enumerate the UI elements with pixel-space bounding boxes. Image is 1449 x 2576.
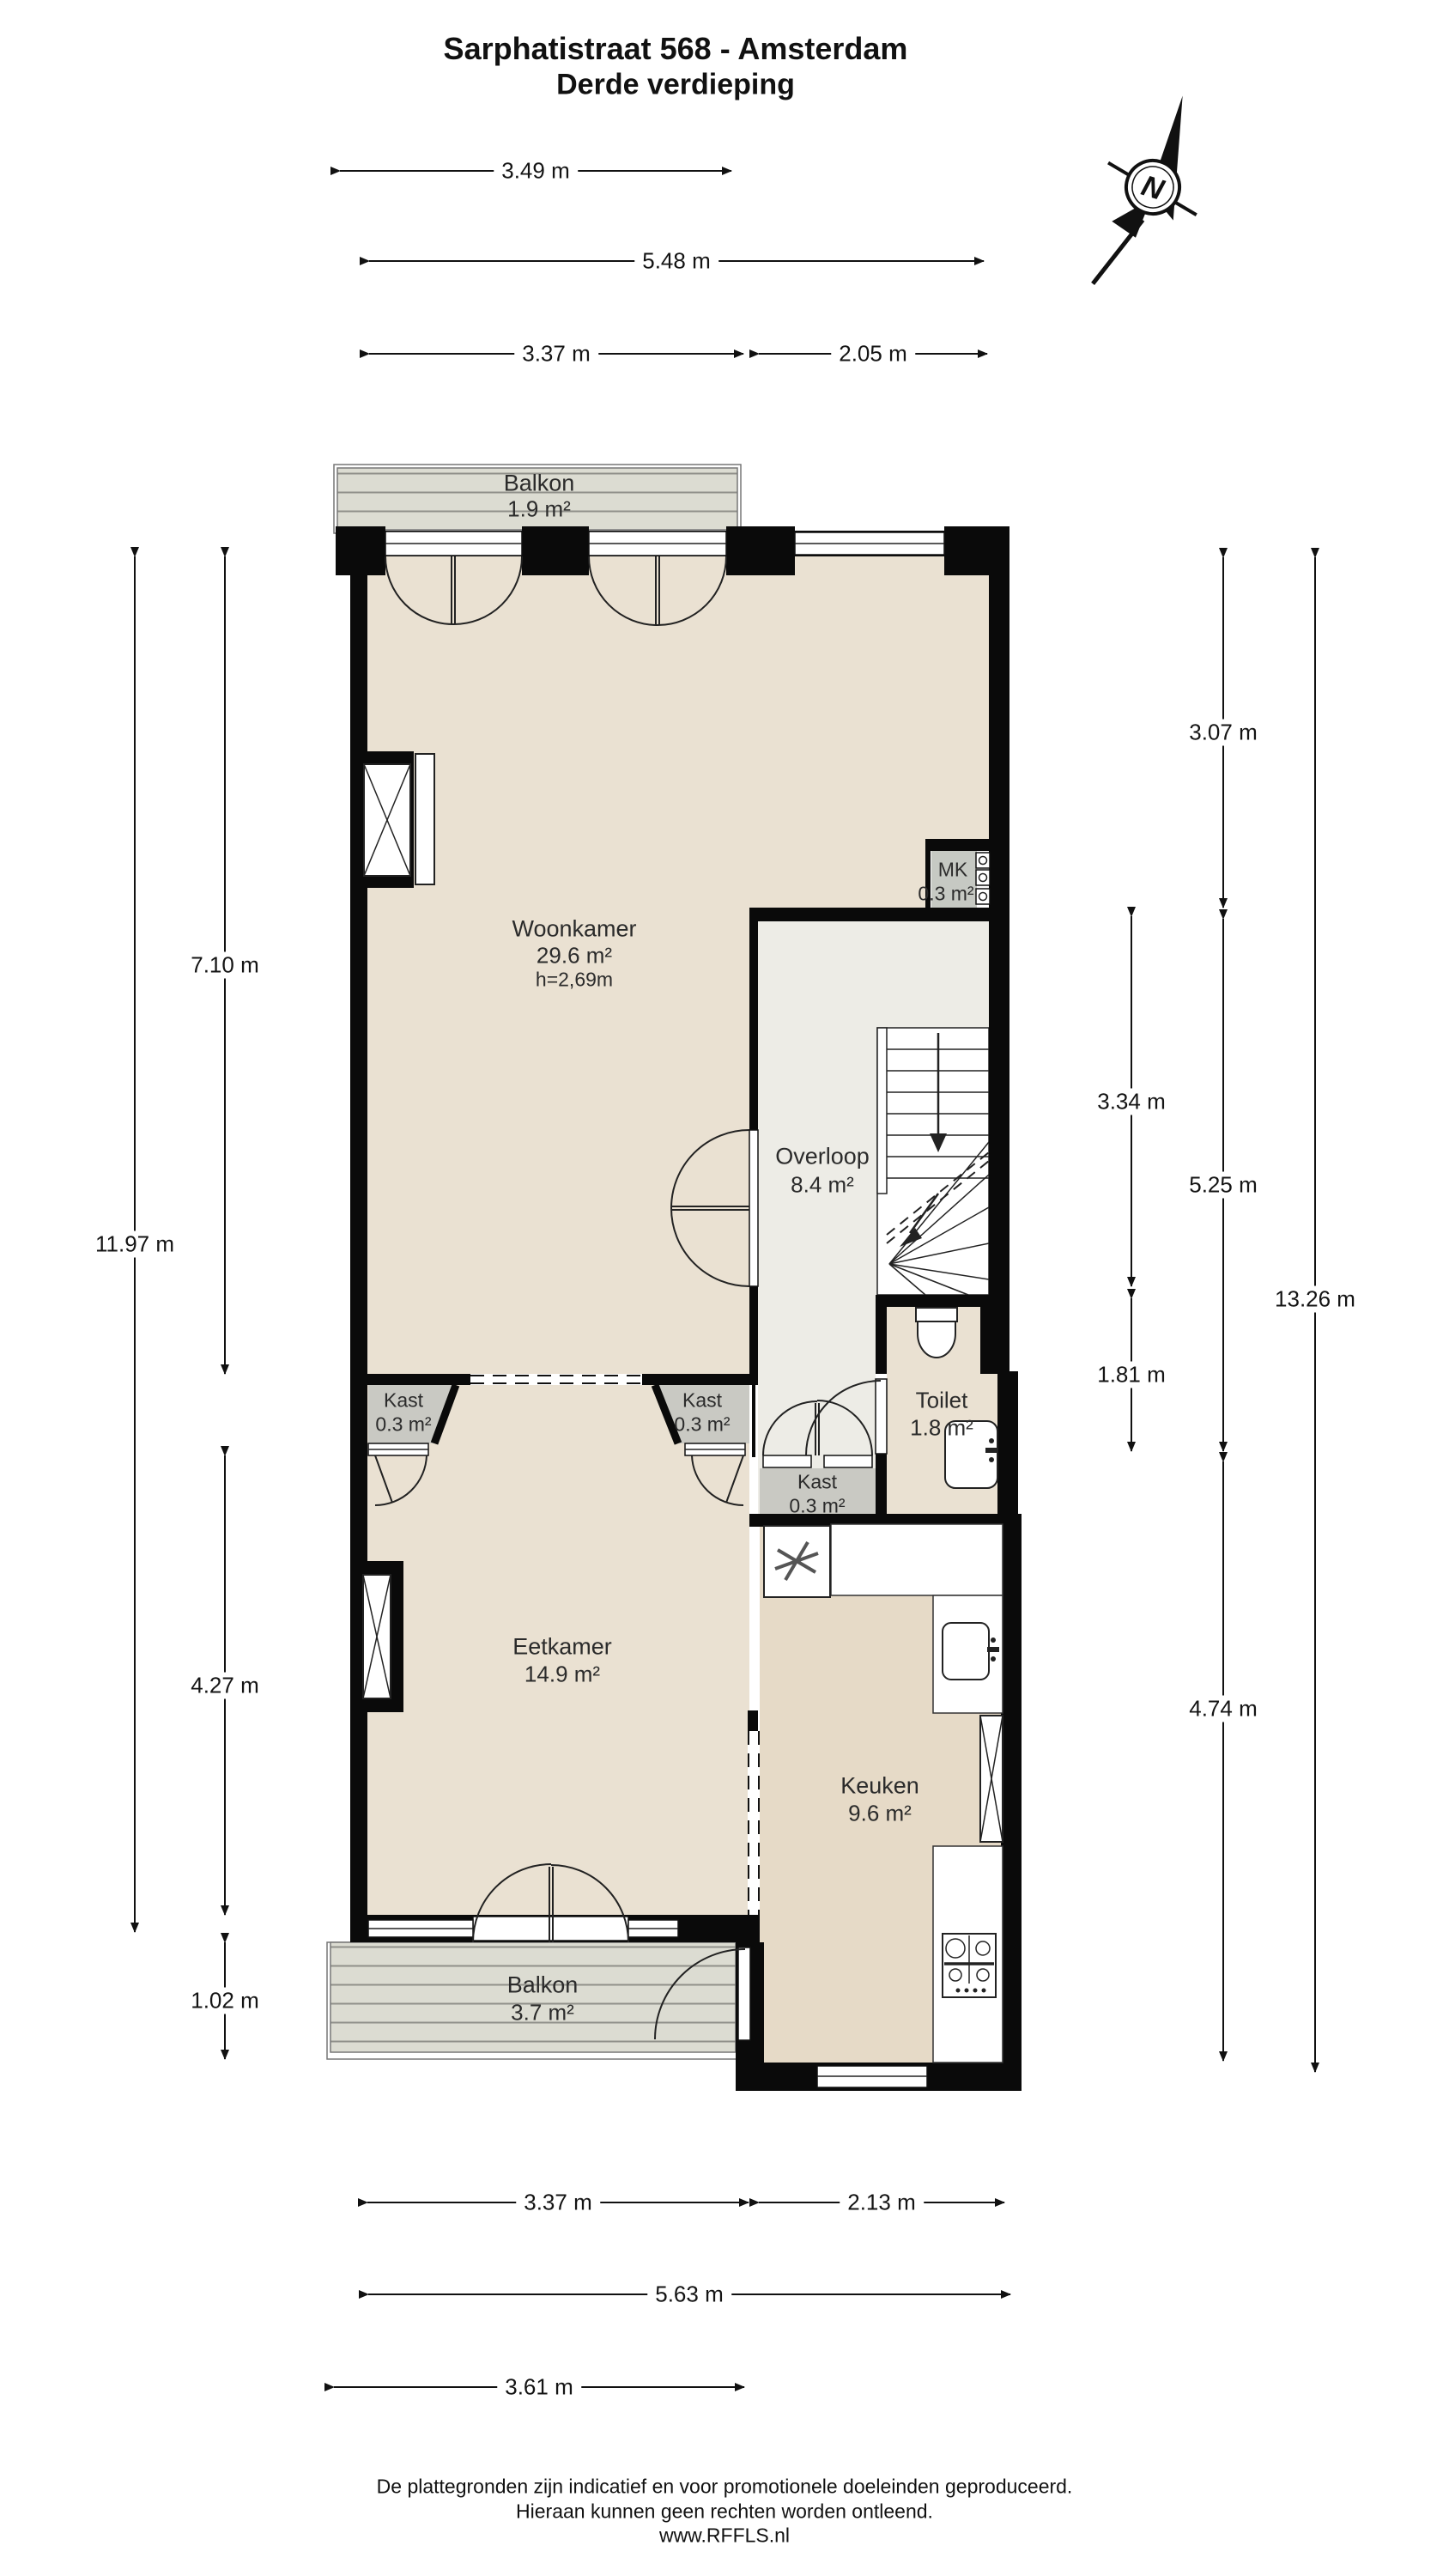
dim-label-top-337: 3.37 m: [514, 341, 598, 368]
dim-label-bottom-213: 2.13 m: [840, 2190, 924, 2216]
room-area-kast-hal: 0.3 m²: [789, 1495, 845, 1518]
eetkamer-balcony-door-opening: [473, 1917, 628, 1941]
toilet-fixture: [916, 1308, 957, 1358]
page-subtitle: Derde verdieping: [556, 69, 795, 102]
chimney-eetkamer: [350, 1561, 403, 1712]
dim-label-top-548: 5.48 m: [634, 248, 718, 275]
floorplan-page: N Sarphatistraat 568 - Amsterdam Derde v…: [0, 0, 1449, 2576]
dim-label-left-427: 4.27 m: [183, 1673, 267, 1699]
room-label-balkon-bottom: Balkon: [507, 1972, 579, 1999]
room-area-toilet: 1.8 m²: [910, 1415, 973, 1442]
dim-label-right-334: 3.34 m: [1089, 1089, 1173, 1115]
kast-hal-door-left: [763, 1455, 811, 1467]
dim-label-right-474: 4.74 m: [1181, 1696, 1265, 1722]
chimney-woonkamer: [350, 751, 434, 888]
dim-label-bottom-361: 3.61 m: [497, 2374, 581, 2401]
north-compass-icon: N: [1073, 81, 1228, 307]
ventilation-fan: [764, 1526, 830, 1597]
room-area-balkon-bottom: 3.7 m²: [511, 2000, 574, 2026]
dim-label-right-181: 1.81 m: [1089, 1362, 1173, 1388]
room-area-keuken: 9.6 m²: [848, 1801, 912, 1827]
floor-fills: [367, 556, 1003, 2064]
kast-hal-door-right: [824, 1455, 872, 1467]
footer-disclaimer-line2: Hieraan kunnen geen rechten worden ontle…: [516, 2500, 933, 2524]
dim-label-right-307: 3.07 m: [1181, 720, 1265, 746]
room-label-kast-left: Kast: [384, 1389, 423, 1413]
page-title: Sarphatistraat 568 - Amsterdam: [444, 31, 908, 67]
floor-plan-drawing: N: [0, 0, 1449, 2576]
dim-label-top-205: 2.05 m: [831, 341, 915, 368]
room-area-kast-right: 0.3 m²: [674, 1413, 730, 1437]
room-label-eetkamer: Eetkamer: [512, 1634, 612, 1661]
dim-label-right-1326: 13.26 m: [1267, 1286, 1363, 1313]
room-label-kast-right: Kast: [682, 1389, 722, 1413]
dim-label-left-710: 7.10 m: [183, 952, 267, 979]
room-area-woonkamer: 29.6 m²: [537, 943, 612, 969]
dim-label-right-525: 5.25 m: [1181, 1172, 1265, 1199]
room-area-eetkamer: 14.9 m²: [524, 1662, 600, 1688]
room-area-overloop: 8.4 m²: [791, 1172, 854, 1199]
footer-disclaimer-line1: De plattegronden zijn indicatief en voor…: [377, 2476, 1073, 2499]
room-area-kast-left: 0.3 m²: [375, 1413, 431, 1437]
room-label-balkon-top: Balkon: [504, 471, 575, 497]
room-label-mk: MK: [938, 859, 968, 882]
footer-website: www.RFFLS.nl: [659, 2524, 790, 2548]
keuken-balcony-door-leaf: [738, 1947, 750, 2040]
kitchen-sink: [933, 1595, 1003, 1713]
room-label-woonkamer: Woonkamer: [512, 916, 636, 943]
stove: [933, 1846, 1003, 2063]
room-label-toilet: Toilet: [916, 1388, 968, 1414]
dim-label-bottom-337: 3.37 m: [516, 2190, 600, 2216]
room-label-overloop: Overloop: [775, 1144, 870, 1170]
room-label-keuken: Keuken: [840, 1773, 919, 1800]
woonkamer-door-opening: [749, 1130, 758, 1286]
toilet-door-leaf: [876, 1379, 887, 1454]
room-label-kast-hal: Kast: [797, 1471, 837, 1494]
room-area-balkon-top: 1.9 m²: [507, 496, 571, 523]
room-height-woonkamer: h=2,69m: [536, 969, 613, 992]
dim-label-left-1197: 11.97 m: [88, 1231, 182, 1258]
room-area-mk: 0.3 m²: [918, 883, 973, 906]
dim-label-left-102: 1.02 m: [183, 1988, 267, 2014]
tall-appliance: [980, 1716, 1003, 1842]
dim-label-top-349: 3.49 m: [494, 158, 578, 185]
dim-label-bottom-563: 5.63 m: [647, 2281, 731, 2308]
staircase: [877, 1028, 989, 1295]
kitchen-counter-top: [831, 1524, 1003, 1595]
